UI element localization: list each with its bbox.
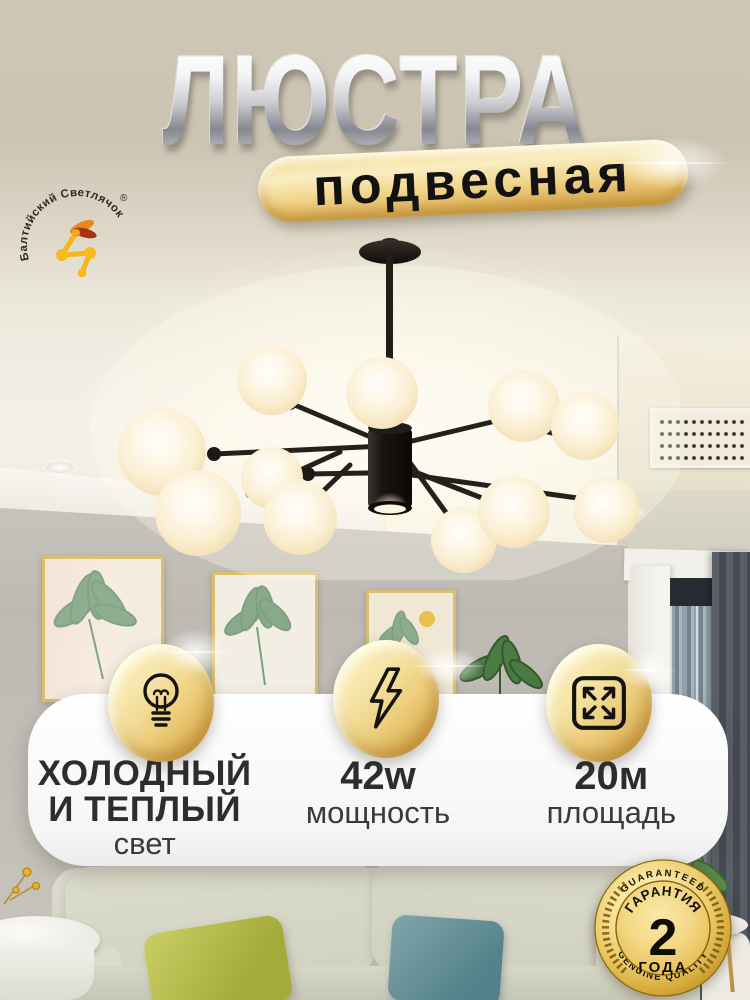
brand-arc-text: Балтийский Светлячок: [18, 187, 126, 262]
feature-area-label: площадь: [495, 796, 728, 831]
floor-plant: [450, 634, 550, 696]
firefly-icon: [56, 217, 98, 278]
center-cylinder: [364, 422, 416, 538]
warranty-medal-badge: GUARANTEED GENUINE QUALITY ГАРАНТИЯ 2 ГО…: [593, 858, 733, 998]
wall-decor-sprig: [0, 860, 46, 910]
teal-pillow: [387, 914, 505, 1000]
subtitle-label: подвесная: [312, 144, 634, 218]
brand-logo: Балтийский Светлячок ®: [12, 163, 144, 305]
feature-light-line2: И ТЕПЛЫЙ: [28, 792, 261, 828]
monstera-leaf-art: [215, 575, 309, 693]
expand-arrows-icon: [570, 674, 628, 732]
feature-icon-circle-power: [333, 640, 439, 758]
product-poster: ЛЮСТРА подвесная Балтийский Светлячок ®: [0, 0, 750, 1000]
registered-mark: ®: [120, 193, 128, 204]
lightbulb-icon: [137, 670, 185, 736]
feature-area-value: 20м: [495, 756, 728, 796]
feature-light-line1: ХОЛОДНЫЙ: [28, 756, 261, 792]
feature-icon-circle-area: [546, 644, 652, 762]
feature-light-line3: свет: [28, 827, 261, 862]
feature-power-value: 42w: [261, 756, 494, 796]
side-table-left-base: [0, 946, 94, 1000]
feature-power-label: мощность: [261, 796, 494, 831]
headline: ЛЮСТРА: [0, 38, 750, 142]
lightning-icon: [365, 666, 407, 732]
feature-icon-circle-light: [108, 644, 214, 762]
chandelier-product-photo: [60, 230, 680, 580]
warranty-unit: ГОДА: [638, 959, 687, 976]
svg-text:Балтийский Светлячок: Балтийский Светлячок: [18, 187, 126, 262]
wall-art-monstera-2: [212, 572, 318, 702]
